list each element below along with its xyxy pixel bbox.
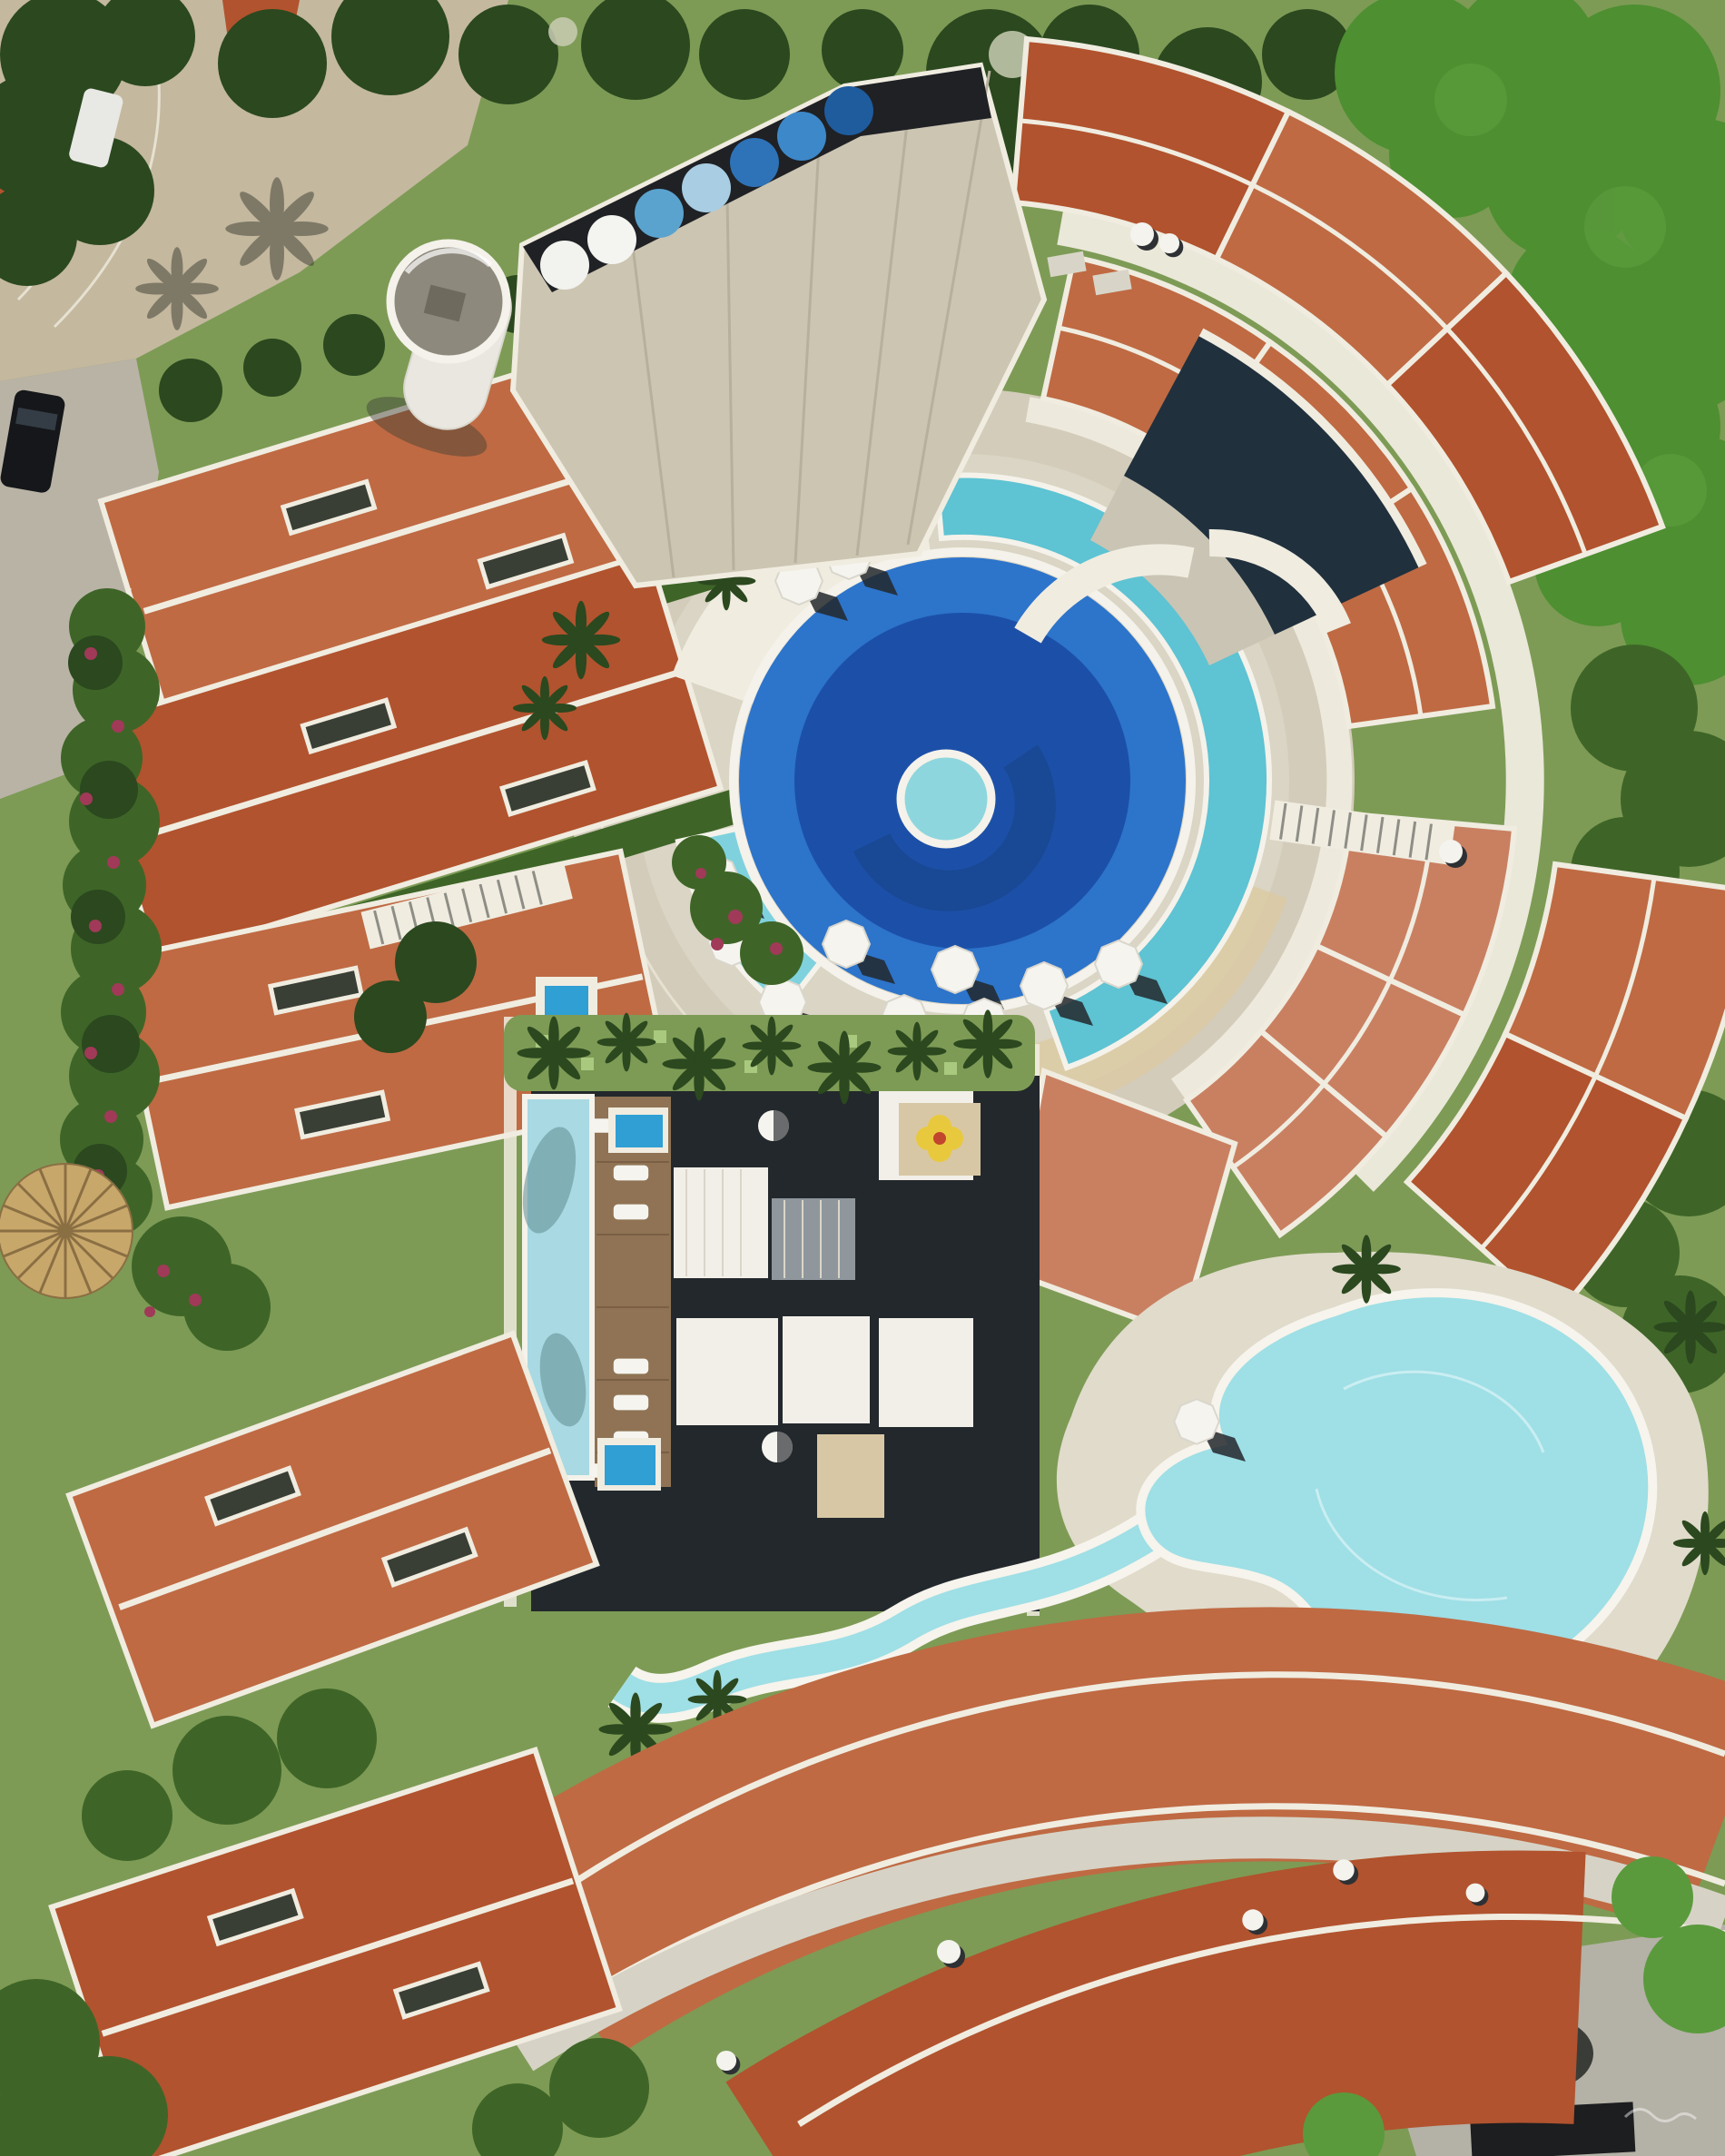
plunge-pool [616,1115,663,1147]
palm-tree [743,1017,802,1076]
wood-deck [595,1097,671,1487]
lounger [614,1166,648,1181]
lounger [614,1395,648,1411]
rooftop-umbrella-5 [730,138,779,187]
rooftop-umbrella-6 [777,112,826,161]
palm-tree [953,1009,1022,1078]
white-umbrella [823,920,870,968]
aerial-photograph [0,0,1725,2156]
palm-shadow [225,177,328,280]
lounger [614,1359,648,1374]
palm-tree [663,1028,736,1101]
palm-tree [1332,1235,1401,1304]
palm-row-north [504,1009,1035,1104]
palm-tree [542,601,620,679]
pool-island [901,753,991,844]
rooftop-umbrella-4 [682,163,731,212]
palm-tree [513,676,577,740]
aerial-photograph-container [0,0,1725,2156]
palm-tree [1654,1291,1725,1364]
white-umbrella [1095,940,1142,988]
palm-tree [808,1031,882,1105]
plunge-pool [605,1445,655,1485]
palm-tree [597,1013,656,1072]
rooftop-umbrella-1 [540,241,589,290]
rooftop-umbrella-7 [824,86,873,135]
white-umbrella [1020,962,1068,1009]
straw-parasol [0,1164,133,1298]
rooftop-umbrella-2 [587,215,636,264]
lounger [614,1205,648,1220]
white-umbrella [931,946,979,993]
palm-tree [888,1022,947,1081]
palm-tree [517,1017,591,1090]
rooftop-umbrella-3 [635,189,684,238]
palm-shadow [135,247,219,330]
white-umbrella [1174,1399,1218,1443]
